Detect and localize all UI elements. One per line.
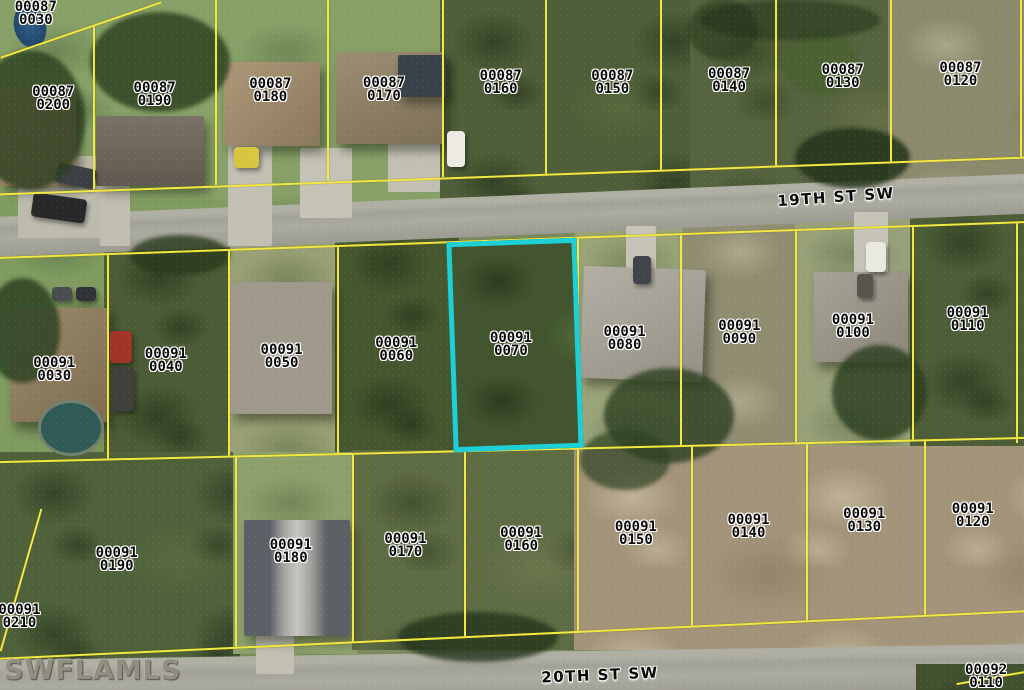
parcel-line (235, 457, 237, 648)
parcel-line (545, 0, 547, 174)
car (76, 287, 96, 301)
parcel-line (775, 0, 777, 166)
house-roof (224, 62, 320, 146)
parcel-line (577, 449, 579, 632)
parcel-line (924, 441, 926, 616)
car (633, 256, 651, 284)
driveway (388, 142, 440, 192)
terrain-bottom-veg-left (0, 452, 240, 660)
house-roof-solar (244, 520, 350, 636)
trees (90, 12, 230, 112)
watermark: SWFLAMLS (4, 655, 181, 686)
pool-enclosure (398, 55, 446, 97)
parcel-line (795, 230, 797, 444)
parcel-line (337, 246, 339, 454)
car (110, 331, 132, 363)
parcel-line (1020, 0, 1022, 158)
parcel-line (660, 0, 662, 170)
swimming-pool (38, 400, 104, 456)
trees (700, 0, 880, 40)
parcel-line (691, 446, 693, 627)
house-roof (230, 282, 332, 414)
terrain-mid-veg-0060 (335, 222, 459, 456)
parcel-line (327, 0, 329, 181)
parcel-line (228, 249, 230, 457)
parcel-line (352, 454, 354, 642)
parcel-line (806, 443, 808, 621)
aerial-parcel-map: 0008700300008702000008701900008701800008… (0, 0, 1024, 690)
parcel-line (1016, 222, 1018, 443)
parcel-line (464, 451, 466, 637)
parcel-line (890, 0, 892, 163)
car (234, 147, 259, 168)
car (52, 287, 72, 301)
terrain-across-20th (916, 664, 1024, 690)
parcel-line (912, 226, 914, 441)
terrain-mid-veg-0110 (910, 200, 1024, 447)
trees (580, 430, 670, 490)
parcel-line (442, 0, 444, 177)
car (447, 131, 465, 167)
car (866, 242, 886, 272)
trees (795, 128, 910, 188)
car (112, 367, 134, 411)
terrain-top-scrub-1 (440, 0, 692, 212)
parcel-line (93, 25, 95, 189)
parcel-line (107, 253, 109, 460)
parcel-line (215, 0, 217, 185)
car (857, 274, 873, 298)
highlighted-parcel-outline (446, 238, 583, 452)
parcel-line (680, 234, 682, 446)
house-roof (96, 116, 204, 186)
trees (130, 235, 230, 275)
